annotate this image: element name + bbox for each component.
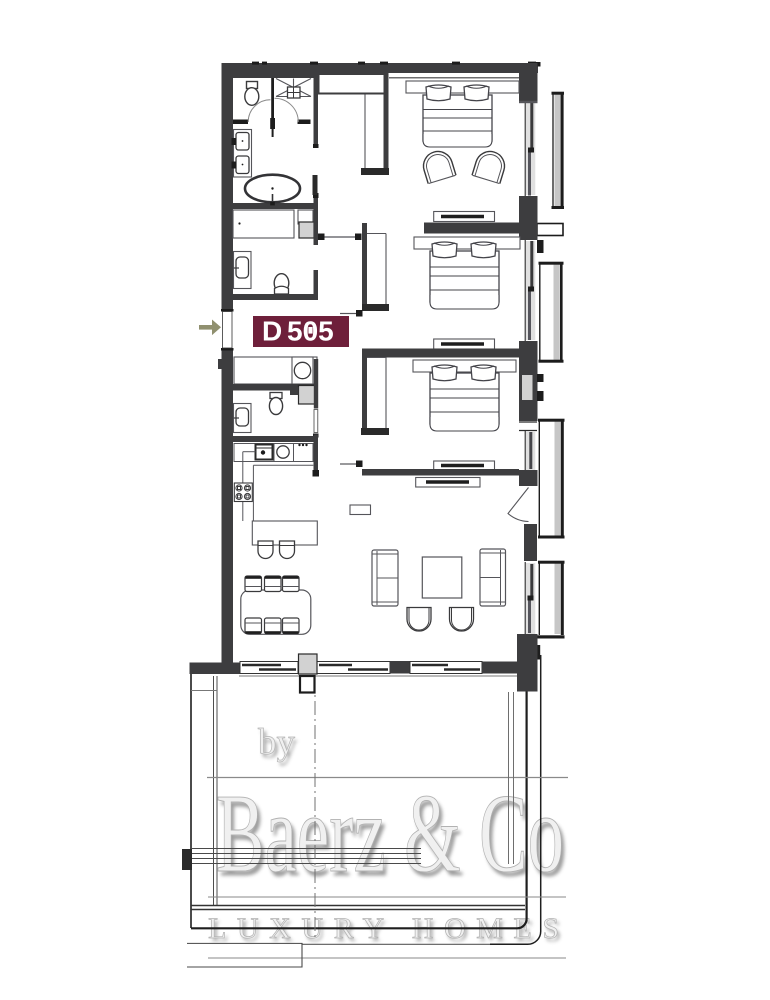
svg-text:by: by bbox=[258, 722, 296, 763]
svg-text:D: D bbox=[262, 316, 282, 347]
svg-text:Baerz & Co: Baerz & Co bbox=[216, 772, 564, 896]
